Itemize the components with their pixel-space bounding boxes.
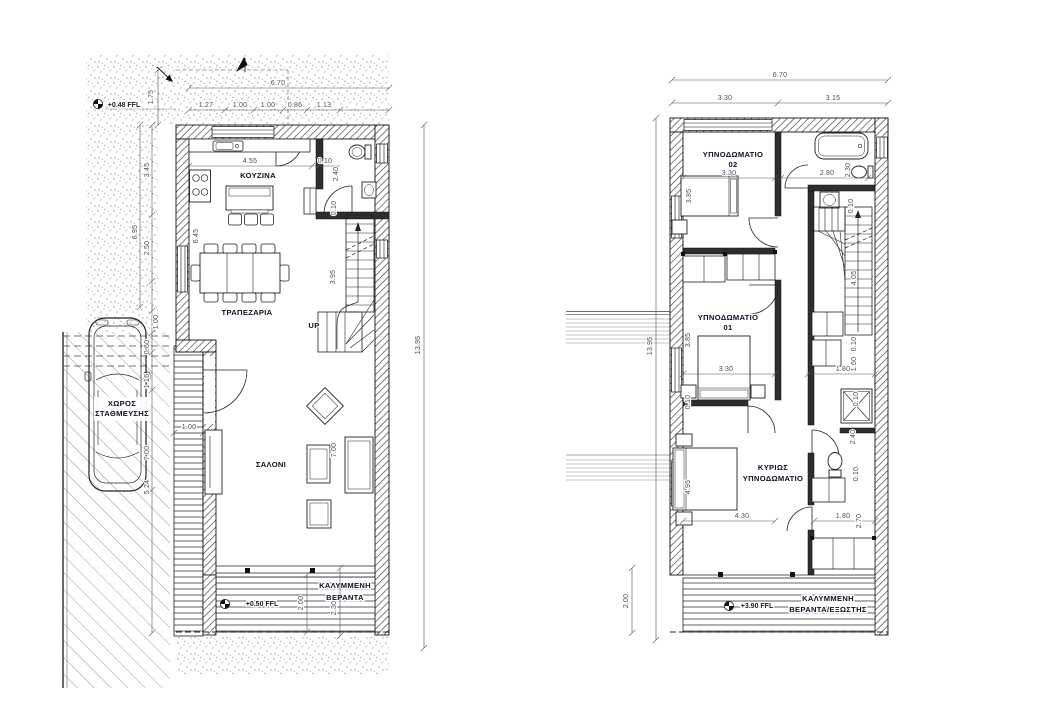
ff-dim-overall-width: 6.70 <box>773 72 787 79</box>
ff-dim-master-width: 4.30 <box>735 513 749 520</box>
gf-veranda-label-2: ΒΕΡΑΝΤΑ <box>326 593 364 602</box>
gf-dim-setback: 1.75 <box>148 90 155 104</box>
gf-dim-left-lower: 2.50 <box>144 241 151 255</box>
gf-dim-park-length: 7.00 <box>144 446 151 460</box>
master-label: ΚΥΡΙΩΣ <box>758 463 788 472</box>
gf-veranda-label: ΚΑΛΥΜΜΕΝΗ <box>319 581 371 590</box>
ff-dim-bath-width: 2.80 <box>820 170 834 177</box>
living-label: ΣΑΛΟΝΙ <box>256 460 286 469</box>
ff-dim-ensuite-depth: 2.40 <box>850 430 857 444</box>
bedroom2-label-2: 02 <box>728 160 737 169</box>
gf-dim-wc-depth: 2.40 <box>333 167 340 181</box>
master-label-2: ΥΠΝΟΔΩΜΑΤΙΟ <box>743 474 803 483</box>
bedroom2-bed-icon <box>672 176 738 234</box>
ff-dim-top-left: 3.30 <box>718 95 732 102</box>
veranda-sliding-door <box>216 566 375 573</box>
gf-dim-stair-run: 3.95 <box>330 270 337 284</box>
gf-dim-entry: 1.00 <box>182 424 196 431</box>
gf-dim-park1: 1.00 <box>153 315 160 329</box>
gf-dim-overall-height: 13.95 <box>415 336 422 355</box>
wc-sink-icon <box>362 182 376 198</box>
ff-dim-master-depth: 4.95 <box>685 480 692 494</box>
gf-dim-left-upper: 3.45 <box>144 163 151 177</box>
gf-dim-seg4: 0.86 <box>288 102 302 109</box>
bathtub-icon <box>815 133 868 159</box>
stove-icon <box>190 170 211 202</box>
ff-dim-bath-depth: 2.30 <box>845 163 852 177</box>
gf-dim-seg3: 1.00 <box>261 102 275 109</box>
ff-dim-wall-2: 0.10 <box>851 337 858 351</box>
gf-dim-veranda-depth2: 2.30 <box>331 601 338 615</box>
gf-dim-wall-2: 0.10 <box>331 201 338 215</box>
gf-dim-veranda-depth: 2.00 <box>298 596 305 610</box>
bath-sink-icon <box>820 192 839 208</box>
ff-dim-bed1-width: 3.30 <box>719 366 733 373</box>
ff-dim-hall: 1.80 <box>836 366 850 373</box>
ff-veranda-deck <box>670 572 888 632</box>
ff-dim-wall-3: 0.10 <box>685 395 692 409</box>
gf-dim-overall-width: 6.70 <box>271 80 285 87</box>
living-furniture <box>205 388 373 528</box>
ff-dim-veranda-depth: 2.00 <box>623 594 630 608</box>
site-level-marker <box>93 99 102 108</box>
floor-plan-drawing: UP <box>0 0 1062 725</box>
ff-dim-overall-height: 13.95 <box>647 337 654 356</box>
bedroom1-label: ΥΠΝΟΔΩΜΑΤΙΟ <box>698 313 758 322</box>
parking-label-2: ΣΤΑΘΜΕΥΣΗΣ <box>95 409 149 418</box>
ff-dim-bed1-depth: 3.85 <box>685 333 692 347</box>
gf-dim-kitchen-depth: 6.45 <box>193 229 200 243</box>
ground-floor-plan: UP <box>63 55 427 688</box>
ensuite-toilet-icon <box>828 453 842 478</box>
floor-plan-sheet: UP <box>0 0 1062 725</box>
kitchen-island <box>226 186 274 225</box>
first-floor-plan: ΥΠΝΟΔΩΜΑΤΙΟ 02 ΥΠΝΟΔΩΜΑΤΙΟ 01 ΚΥΡΙΩΣ ΥΠΝ… <box>566 72 891 643</box>
ff-dim-top-right: 3.15 <box>826 95 840 102</box>
ff-dim-landing: 1.60 <box>851 357 858 371</box>
veranda-level-label: +0.50 FFL <box>246 601 279 608</box>
ff-veranda-label: ΚΑΛΥΜΜΕΝΗ <box>802 594 854 603</box>
ff-dim-wall-5: 0.10 <box>853 467 860 481</box>
roof-edge-lines <box>566 312 670 481</box>
bedroom2-label: ΥΠΝΟΔΩΜΑΤΙΟ <box>703 150 763 159</box>
gf-dim-park-rem: 5.24 <box>144 480 151 494</box>
ff-dim-wall-1: 0.10 <box>848 199 855 213</box>
ff-dim-bed2-depth: 3.85 <box>686 189 693 203</box>
dining-table <box>191 244 289 302</box>
veranda-level-marker <box>220 599 229 608</box>
gf-dim-seg2: 1.00 <box>233 102 247 109</box>
gf-dim-park3: 1.16 <box>144 374 151 388</box>
gf-dim-park2: 0.60 <box>144 340 151 354</box>
gf-dim-wall: 0.10 <box>318 158 332 165</box>
stairs-up-label: UP <box>308 321 319 330</box>
gf-dim-left-overall: 6.95 <box>132 225 139 239</box>
driveway-hatch <box>63 332 170 688</box>
ff-dim-bed2-width: 3.30 <box>722 170 736 177</box>
ff-dim-ensuite-width: 1.80 <box>836 513 850 520</box>
wc-toilet-icon <box>349 145 371 159</box>
gf-dim-seg5: 1.13 <box>317 102 331 109</box>
ff-dim-wall-4: 0.10 <box>853 392 860 406</box>
gf-dim-living-depth: 7.00 <box>331 443 338 457</box>
hall-closet <box>304 188 316 214</box>
dining-label: ΤΡΑΠΕΖΑΡΙΑ <box>222 308 273 317</box>
ff-dim-stair-run: 4.05 <box>851 271 858 285</box>
gf-dim-seg1: 1.27 <box>199 102 213 109</box>
ff-level-label: +3.90 FFL <box>741 603 774 610</box>
kitchen-counter <box>189 139 310 152</box>
ff-dim-closet-depth: 2.70 <box>856 514 863 528</box>
bedroom1-label-2: 01 <box>723 323 733 332</box>
gf-dim-kitchen-width: 4.55 <box>243 158 257 165</box>
ff-level-marker <box>724 601 733 610</box>
parking-label: ΧΩΡΟΣ <box>108 399 136 408</box>
side-steps <box>174 346 203 636</box>
site-level-label: +0.48 FFL <box>108 102 141 109</box>
ff-veranda-label-2: ΒΕΡΑΝΤΑ/ΕΞΩΣΤΗΣ <box>789 605 867 614</box>
stairs-ground <box>318 215 374 352</box>
kitchen-label: ΚΟΥΖΙΝΑ <box>240 171 276 180</box>
